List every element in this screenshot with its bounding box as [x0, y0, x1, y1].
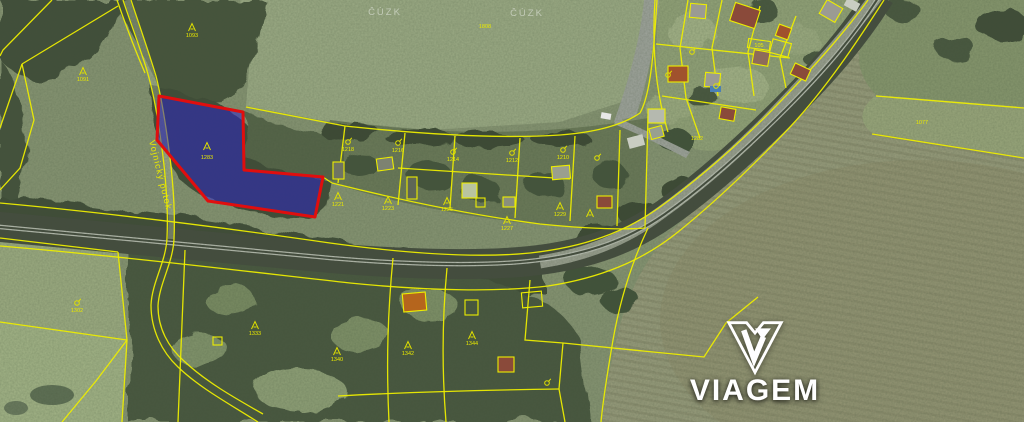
building-outline [689, 3, 706, 18]
building-outline [710, 86, 721, 92]
parcel-number-label: 1077 [916, 120, 928, 126]
building-outline [668, 66, 688, 82]
parcel-number-label: 1214 [447, 157, 459, 163]
parcel-number-label: 1340 [331, 357, 343, 363]
building-outline [648, 109, 665, 123]
building-outline [551, 165, 570, 180]
cuzk-watermark: ČÚZK [368, 7, 402, 18]
aerial-map-canvas: 1808128312181216121412121210122112231225… [0, 0, 1024, 422]
parcel-number-label: 1282 [691, 136, 703, 142]
parcel-number-label: 1229 [554, 212, 566, 218]
map-view: 1808128312181216121412121210122112231225… [0, 0, 1024, 422]
parcel-number-label: 1093 [186, 33, 198, 39]
parcel-number-label: 1227 [501, 226, 513, 232]
parcel-number-label: 1216 [392, 148, 404, 154]
parcel-number-label: 1283 [201, 155, 213, 161]
parcel-number-label: 1333 [249, 331, 261, 337]
building-outline [752, 50, 770, 67]
building-outline [498, 357, 514, 372]
parcel-number-label: 1302 [71, 308, 83, 314]
parcel-number-label: 105 [754, 43, 763, 49]
parcel-number-label: 1225 [441, 207, 453, 213]
cuzk-watermark: ČÚZK [510, 8, 544, 19]
parcel-number-label: 1210 [557, 155, 569, 161]
building-outline [376, 157, 394, 171]
building-outline [597, 196, 612, 208]
parcel-number-label: 1221 [332, 202, 344, 208]
building-outline [333, 162, 344, 179]
building-outline [503, 197, 515, 207]
parcel-number-label: 1091 [77, 77, 89, 83]
parcel-number-label: 1344 [466, 341, 478, 347]
building-outline [462, 183, 477, 198]
parcel-number-label: 1218 [342, 147, 354, 153]
parcel-number-label: 1808 [479, 24, 491, 30]
parcel-number-label: 1212 [506, 158, 518, 164]
building-outline [407, 177, 417, 199]
parcel-number-label: 1342 [402, 351, 414, 357]
building-outline [719, 107, 736, 121]
building-outline [402, 292, 426, 312]
parcel-number-label: 1223 [382, 206, 394, 212]
